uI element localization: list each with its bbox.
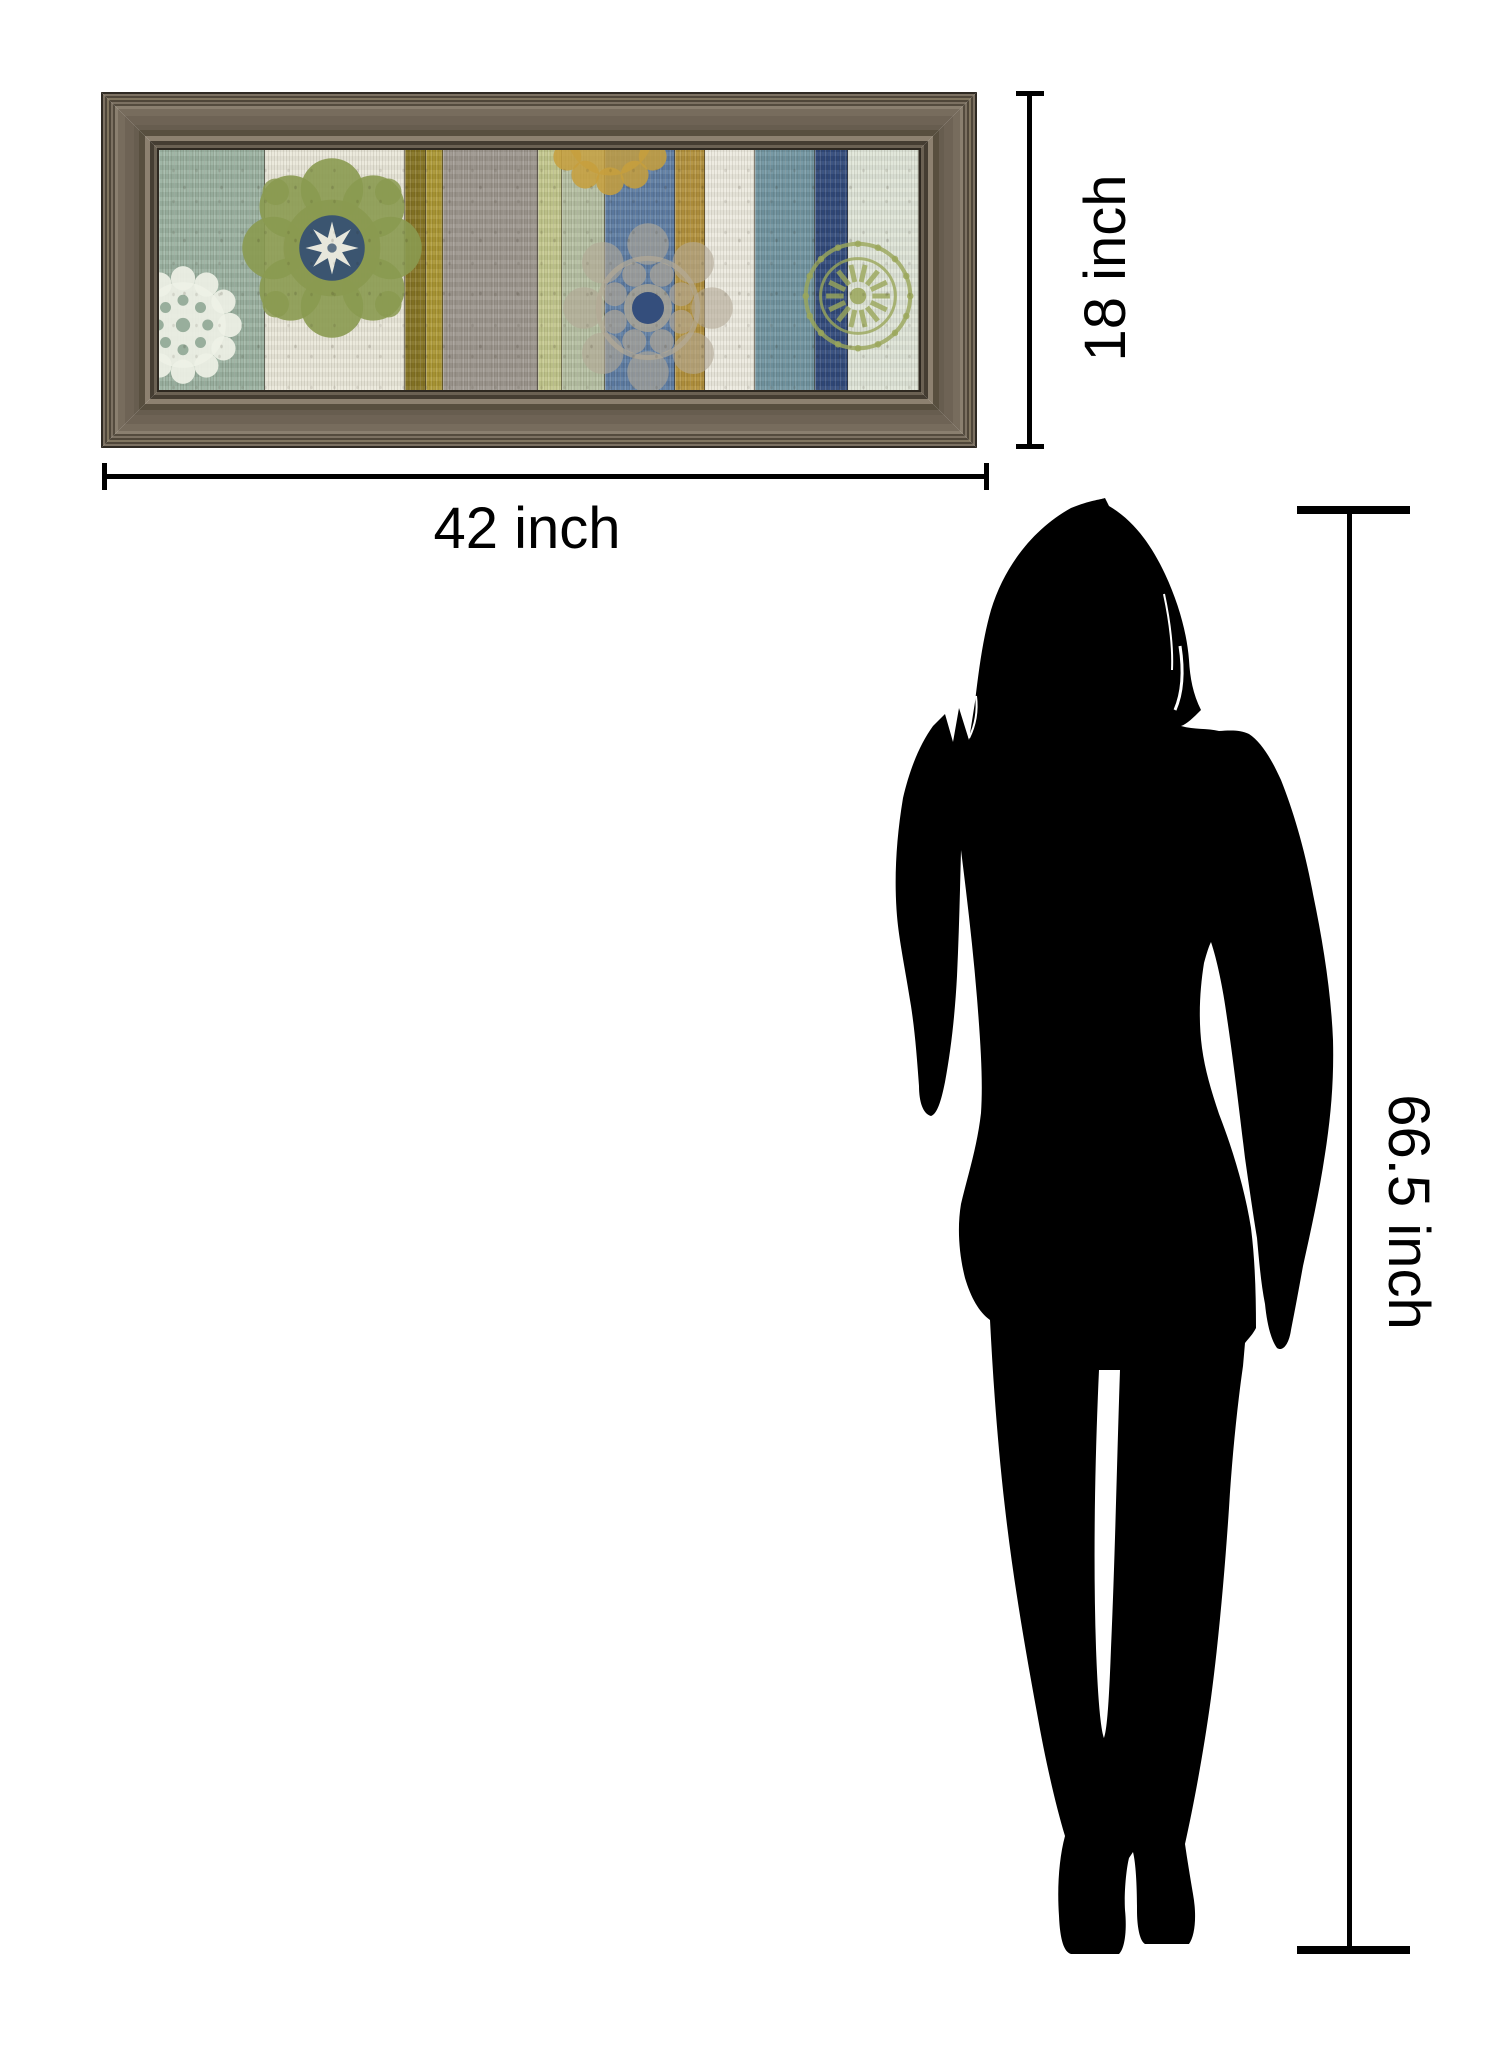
- green-ring-stamp-medallion: [802, 240, 913, 351]
- blue-ornate-medallion: [563, 223, 733, 390]
- width-dimension-cap-right: [984, 463, 989, 490]
- person-height-dimension-cap-top: [1297, 506, 1410, 514]
- person-height-dimension-label: 66.5 inch: [1379, 1094, 1437, 1329]
- size-comparison-diagram: 42 inch 18 inch 66.5 inch: [0, 0, 1500, 2048]
- frame-molding-top: [101, 92, 977, 150]
- person-height-dimension-cap-bottom: [1297, 1946, 1410, 1954]
- width-dimension-line: [102, 474, 988, 479]
- artwork-canvas: [159, 150, 919, 390]
- woman-silhouette: [893, 498, 1343, 1958]
- height-dimension-cap-top: [1016, 91, 1044, 96]
- woman-silhouette-body: [896, 498, 1334, 1954]
- frame-molding-right: [919, 92, 977, 448]
- white-lace-doily-medallion: [159, 266, 242, 384]
- height-dimension-label: 18 inch: [1077, 174, 1135, 361]
- width-dimension-cap-left: [102, 463, 107, 490]
- width-dimension-label: 42 inch: [433, 500, 620, 558]
- frame-molding-bottom: [101, 390, 977, 448]
- artwork-medallions: [159, 150, 919, 390]
- person-height-dimension-line: [1347, 510, 1352, 1950]
- frame-molding-left: [101, 92, 159, 448]
- height-dimension-cap-bottom: [1016, 444, 1044, 449]
- gold-medallion: [547, 150, 673, 195]
- green-suzani-medallion: [242, 158, 421, 337]
- height-dimension-line: [1027, 93, 1032, 447]
